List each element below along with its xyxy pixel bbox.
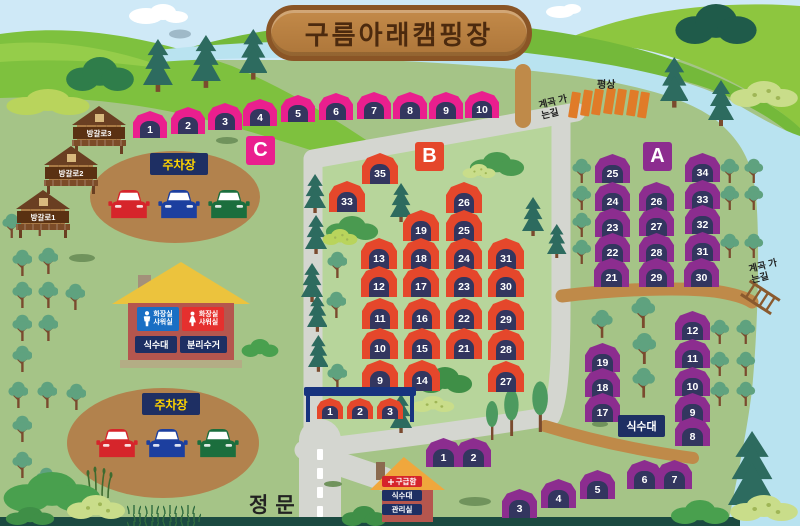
title-sign: 구름아래캠핑장: [266, 5, 532, 61]
parking-lot-bottom: [67, 388, 259, 498]
terrain-background: [0, 0, 800, 526]
title-text: 구름아래캠핑장: [305, 15, 493, 52]
campground-map: 12345678910C3533261925131824311217233011…: [0, 0, 800, 526]
section-b-area: [313, 118, 562, 449]
parking-lot-top: [90, 151, 260, 243]
cloud-small: [169, 30, 191, 39]
bottom-treeline: [0, 517, 740, 526]
